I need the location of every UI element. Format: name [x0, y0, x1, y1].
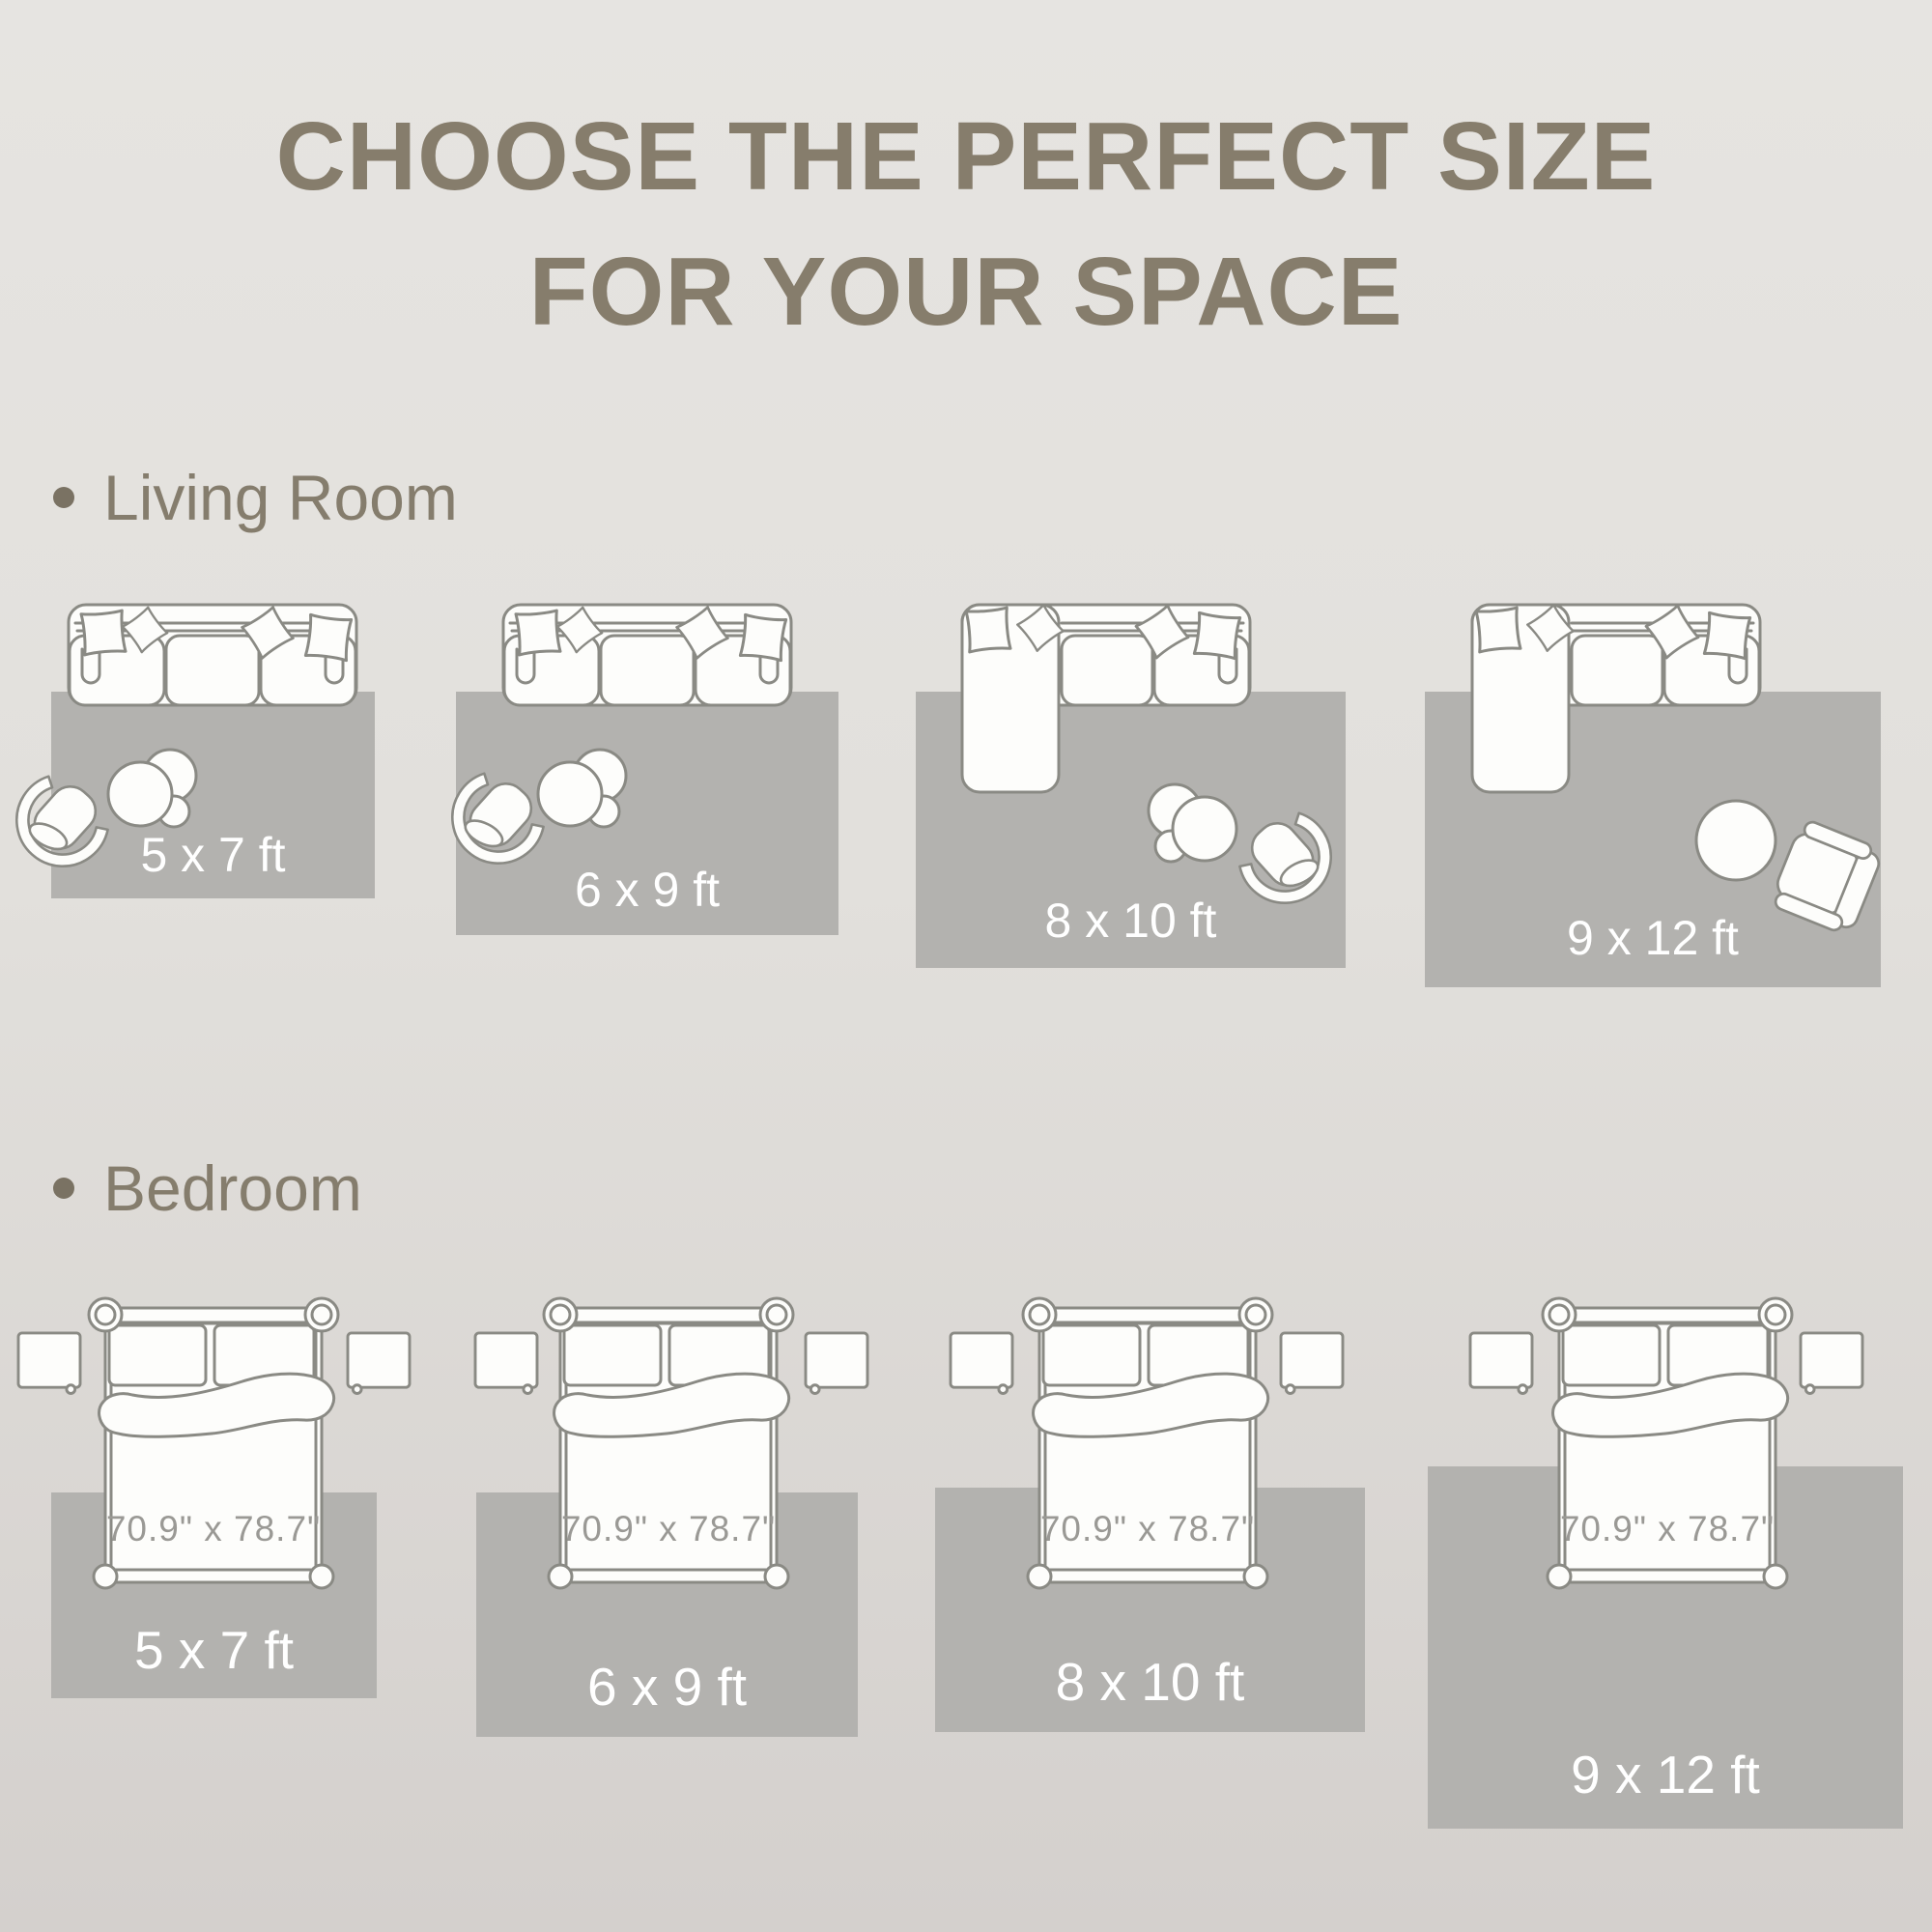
bed-size-label: 70.9" x 78.7": [553, 1509, 784, 1549]
bed-size-label: 70.9" x 78.7": [1032, 1509, 1264, 1549]
nightstand-icon: [473, 1331, 539, 1393]
nightstand-icon: [949, 1331, 1014, 1393]
rug-size-guide-infographic: CHOOSE THE PERFECT SIZE FOR YOUR SPACE L…: [0, 0, 1932, 1932]
section-living-room: Living Room: [53, 461, 458, 534]
sectional-sofa-icon: [1471, 601, 1761, 794]
section-bedroom-label: Bedroom: [103, 1151, 362, 1225]
sofa-icon: [502, 601, 792, 712]
bed-size-label: 70.9" x 78.7": [1551, 1509, 1783, 1549]
sofa-icon: [68, 601, 357, 712]
round-table-icon: [1694, 799, 1777, 882]
section-bedroom: Bedroom: [53, 1151, 362, 1225]
nightstand-icon: [16, 1331, 82, 1393]
sectional-sofa-icon: [961, 601, 1251, 794]
nightstand-icon: [1279, 1331, 1345, 1393]
rug-size-label: 9 x 12 ft: [1428, 1744, 1903, 1805]
rug-size-label: 6 x 9 ft: [476, 1656, 858, 1718]
section-living-room-label: Living Room: [103, 461, 458, 534]
bullet-icon: [53, 1178, 74, 1199]
rug-size-label: 5 x 7 ft: [51, 1619, 377, 1681]
page-title-line1: CHOOSE THE PERFECT SIZE: [0, 89, 1932, 224]
nightstand-icon: [1799, 1331, 1864, 1393]
bed-size-label: 70.9" x 78.7": [98, 1509, 329, 1549]
page-title-line2: FOR YOUR SPACE: [0, 224, 1932, 359]
nightstand-icon: [346, 1331, 412, 1393]
nightstand-icon: [804, 1331, 869, 1393]
bullet-icon: [53, 487, 74, 508]
rug-size-label: 8 x 10 ft: [935, 1651, 1365, 1713]
page-title: CHOOSE THE PERFECT SIZE FOR YOUR SPACE: [0, 89, 1932, 359]
nightstand-icon: [1468, 1331, 1534, 1393]
